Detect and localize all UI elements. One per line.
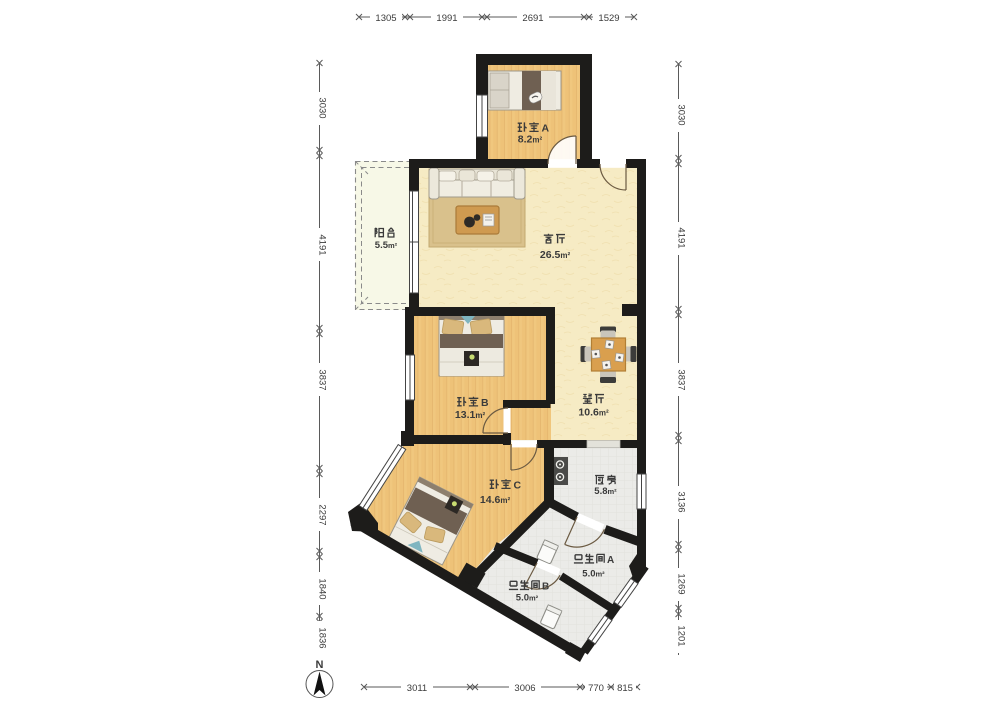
- svg-text:3030: 3030: [676, 104, 687, 125]
- svg-text:770: 770: [588, 683, 604, 694]
- svg-text:N: N: [316, 659, 324, 671]
- svg-text:4191: 4191: [317, 234, 328, 255]
- svg-text:C: C: [514, 480, 522, 492]
- svg-text:14.6m²: 14.6m²: [480, 494, 511, 506]
- svg-text:5.5m²: 5.5m²: [375, 240, 398, 251]
- svg-text:1305: 1305: [375, 13, 396, 24]
- svg-text:815: 815: [617, 683, 633, 694]
- svg-text:5.0m²: 5.0m²: [582, 569, 605, 580]
- svg-text:3011: 3011: [407, 683, 427, 694]
- svg-text:3030: 3030: [317, 97, 328, 118]
- svg-text:8.2m²: 8.2m²: [518, 134, 543, 146]
- svg-text:3837: 3837: [317, 369, 328, 390]
- svg-text:13.1m²: 13.1m²: [455, 409, 486, 421]
- svg-text:5.0m²: 5.0m²: [516, 593, 539, 604]
- svg-text:1269: 1269: [676, 573, 687, 594]
- svg-text:B: B: [542, 582, 549, 593]
- svg-text:26.5m²: 26.5m²: [540, 249, 571, 261]
- svg-text:2691: 2691: [522, 13, 543, 24]
- svg-text:1529: 1529: [598, 13, 619, 24]
- svg-text:3837: 3837: [676, 369, 687, 390]
- svg-text:A: A: [542, 123, 550, 135]
- svg-text:A: A: [607, 555, 614, 566]
- svg-text:1836: 1836: [317, 627, 328, 648]
- svg-text:B: B: [481, 397, 489, 409]
- svg-text:2297: 2297: [317, 504, 328, 525]
- svg-text:3136: 3136: [676, 491, 687, 512]
- svg-text:1840: 1840: [317, 578, 328, 599]
- svg-text:3006: 3006: [514, 683, 535, 694]
- svg-text:1991: 1991: [436, 13, 457, 24]
- svg-text:10.6m²: 10.6m²: [578, 407, 609, 419]
- svg-text:5.8m²: 5.8m²: [594, 486, 617, 497]
- svg-text:4191: 4191: [676, 227, 687, 248]
- svg-text:1201: 1201: [676, 625, 687, 646]
